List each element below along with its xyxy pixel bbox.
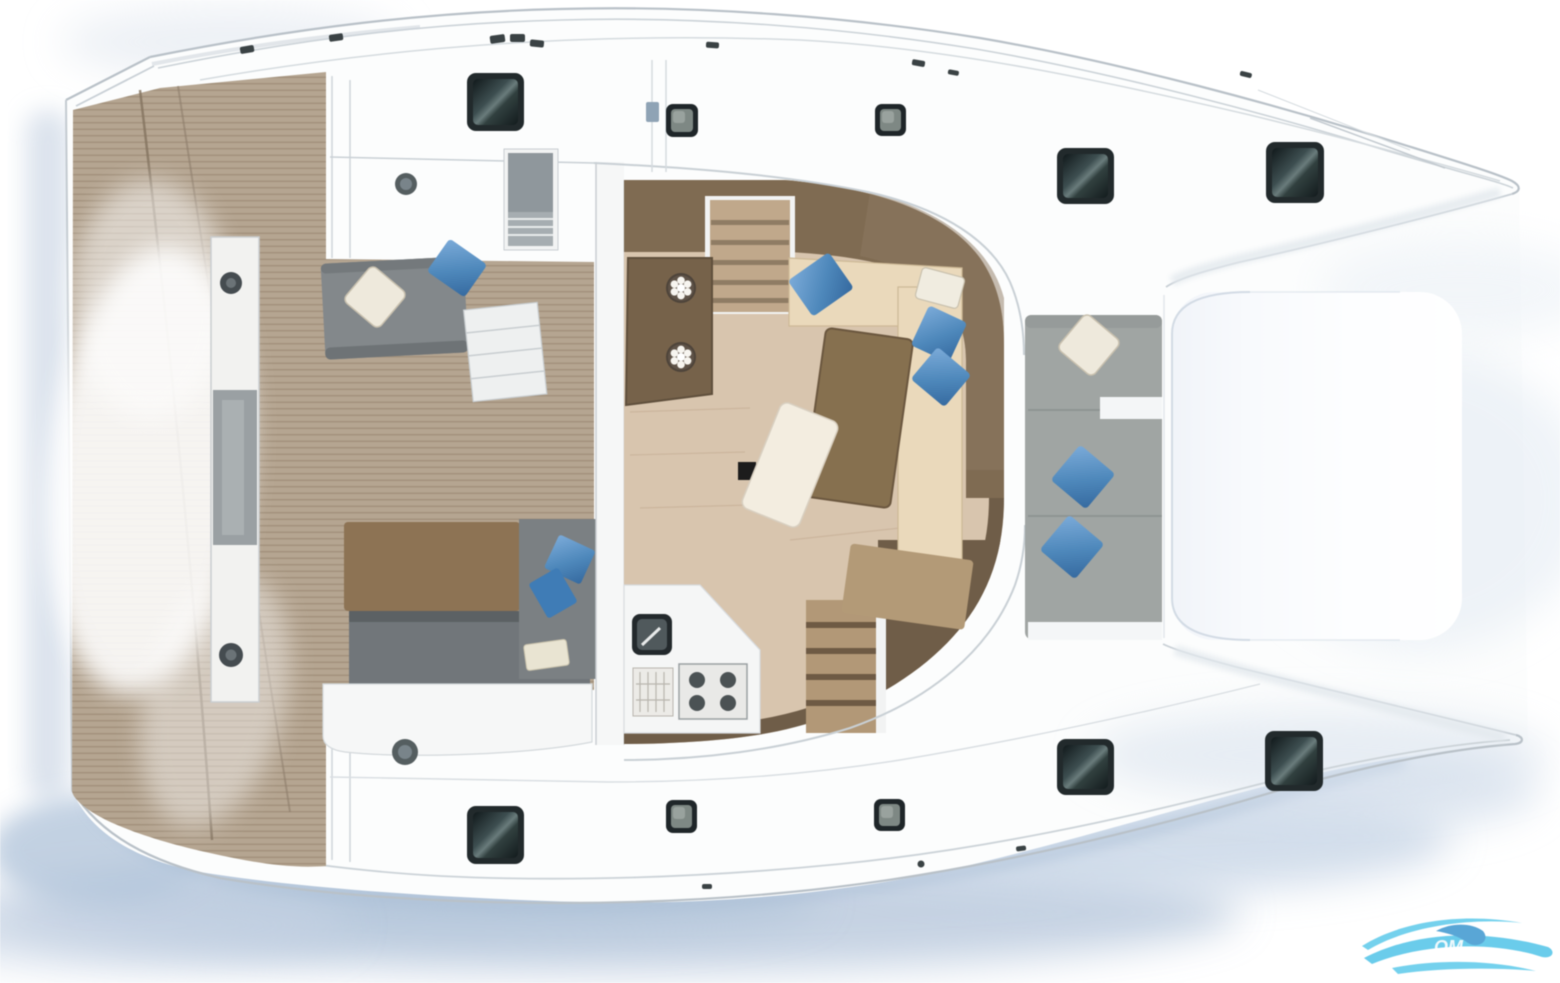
svg-text:OM: OM <box>1434 937 1464 957</box>
